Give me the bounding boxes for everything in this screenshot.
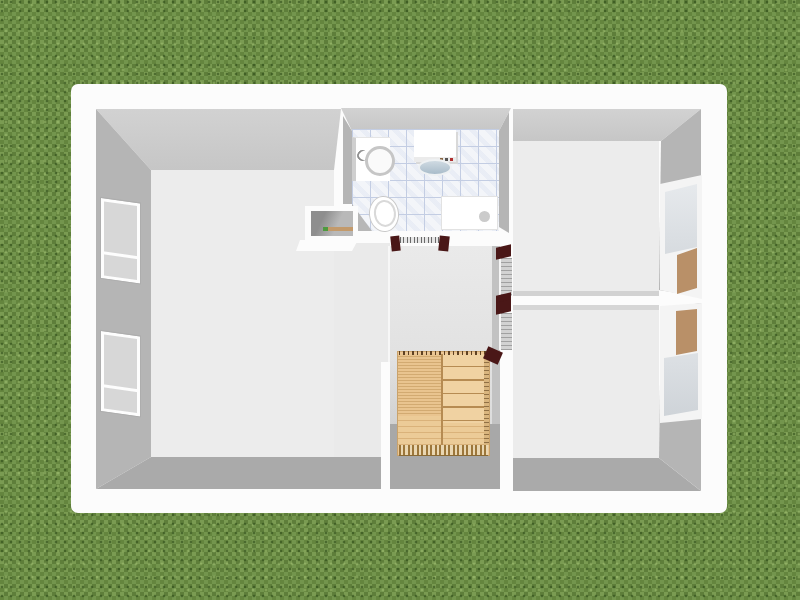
stairwell-west-wall-top — [381, 362, 390, 489]
window-mullion — [103, 252, 138, 260]
shower-drain-icon — [479, 211, 490, 222]
bathroom-door-post-left — [390, 236, 401, 252]
3d-floorplan-viewport[interactable] — [0, 0, 800, 600]
staircase-bottom-balusters — [399, 445, 488, 456]
sink-basin[interactable] — [418, 159, 452, 176]
ne-room-floor[interactable] — [513, 141, 659, 291]
heater-indicator-red — [450, 158, 453, 161]
se-room-floor[interactable] — [513, 310, 659, 458]
toilet-seat-icon — [373, 199, 398, 228]
bathroom-door-post-right — [438, 236, 450, 252]
east-window-south[interactable] — [660, 303, 702, 423]
staircase-divider — [441, 354, 443, 447]
staircase-lower-flight — [443, 354, 484, 423]
staircase-upper-flight — [398, 354, 441, 416]
shower-tray[interactable] — [441, 196, 498, 230]
bathroom-east-wall-face — [499, 112, 509, 233]
window-mullion — [103, 385, 138, 393]
bathroom-door-rail[interactable] — [400, 237, 439, 243]
west-room-west-wall-face — [96, 109, 151, 489]
west-window-2[interactable] — [101, 331, 140, 416]
east-window-north[interactable] — [660, 175, 702, 299]
niche-green-item — [323, 227, 328, 231]
staircase-rail — [484, 354, 489, 445]
staircase[interactable] — [397, 351, 490, 456]
water-heater[interactable] — [414, 130, 456, 162]
bathroom-north-wall-face — [341, 108, 511, 131]
washing-machine[interactable] — [352, 137, 390, 181]
southeast-door-panel[interactable] — [499, 313, 512, 350]
wall-niche-shelf[interactable] — [305, 206, 358, 240]
northeast-door-panel[interactable] — [499, 258, 512, 296]
room-boundary-line — [388, 246, 390, 363]
bathroom-west-wall-face — [343, 116, 352, 204]
niche-underside — [296, 240, 358, 251]
west-window-1[interactable] — [101, 198, 140, 283]
ne-room-south-wall-sliver — [513, 291, 659, 296]
staircase-top-balusters — [399, 351, 488, 355]
washing-machine-drum-icon — [365, 146, 395, 176]
niche-interior — [311, 211, 353, 236]
niche-wood-item — [327, 227, 353, 231]
